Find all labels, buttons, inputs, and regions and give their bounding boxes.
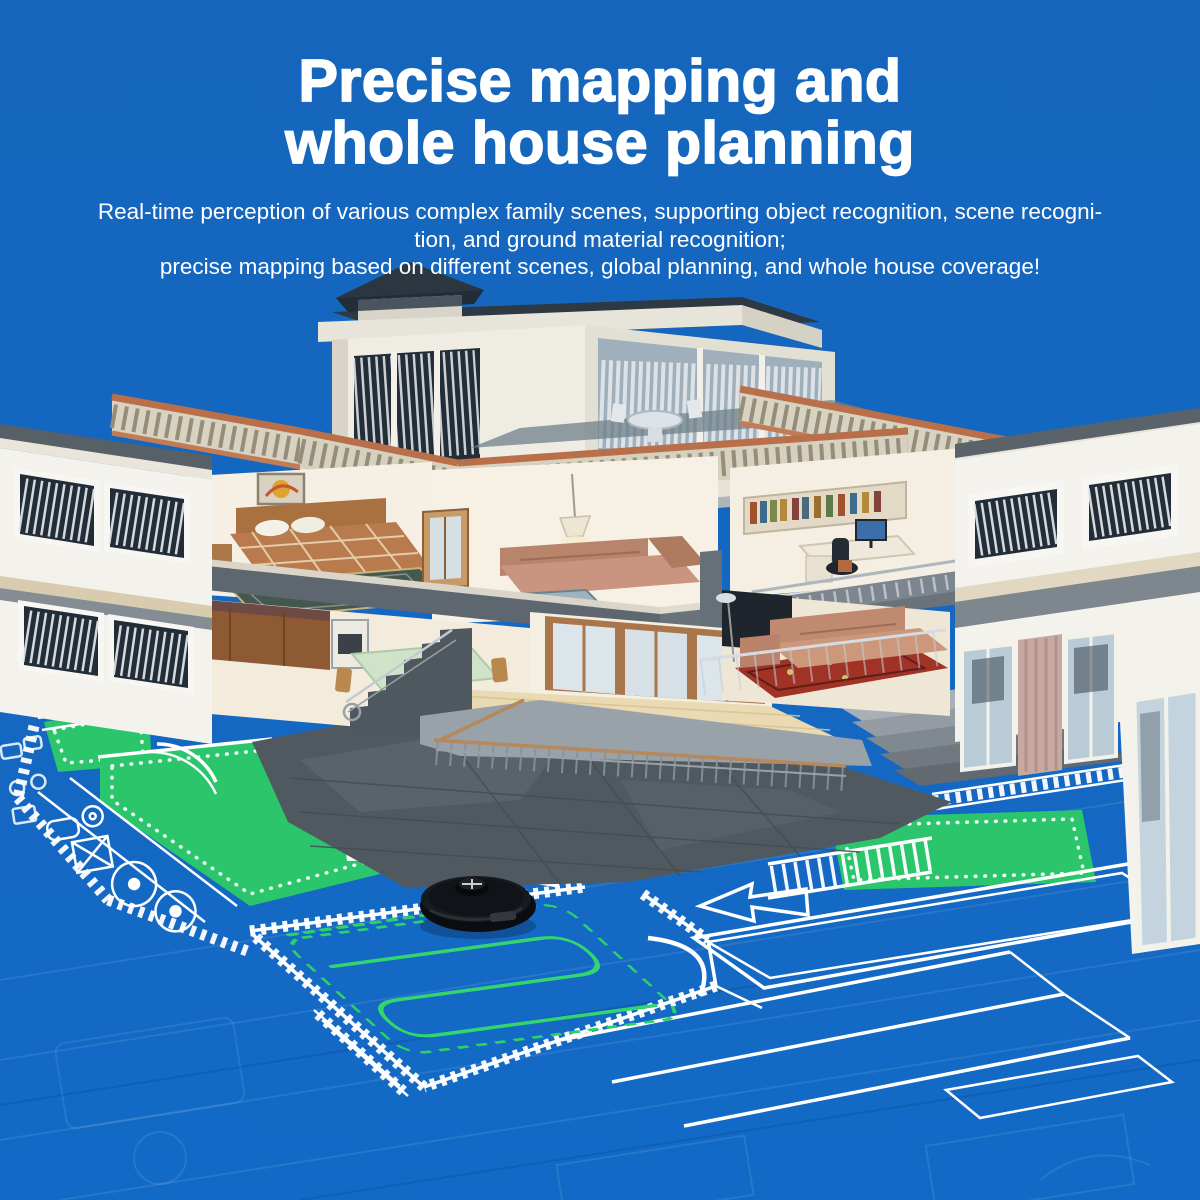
promo-page: Precise mapping and whole house planning… — [0, 0, 1200, 1200]
page-title: Precise mapping and whole house planning — [0, 50, 1200, 174]
tv-room — [700, 590, 950, 716]
title-line-2: whole house planning — [0, 112, 1200, 174]
tall-glass-door — [1134, 690, 1198, 948]
interior-door — [423, 509, 468, 589]
subtitle-line-2: tion, and ground material recognition; — [40, 226, 1160, 254]
subtitle-line-3: precise mapping based on different scene… — [40, 253, 1160, 281]
subtitle-line-1: Real-time perception of various complex … — [40, 198, 1160, 226]
left-wing — [0, 424, 212, 744]
page-subtitle: Real-time perception of various complex … — [40, 198, 1160, 281]
header: Precise mapping and whole house planning… — [0, 50, 1200, 281]
title-line-1: Precise mapping and — [0, 50, 1200, 112]
curtain — [1018, 634, 1062, 776]
robot-vacuum — [420, 876, 536, 939]
